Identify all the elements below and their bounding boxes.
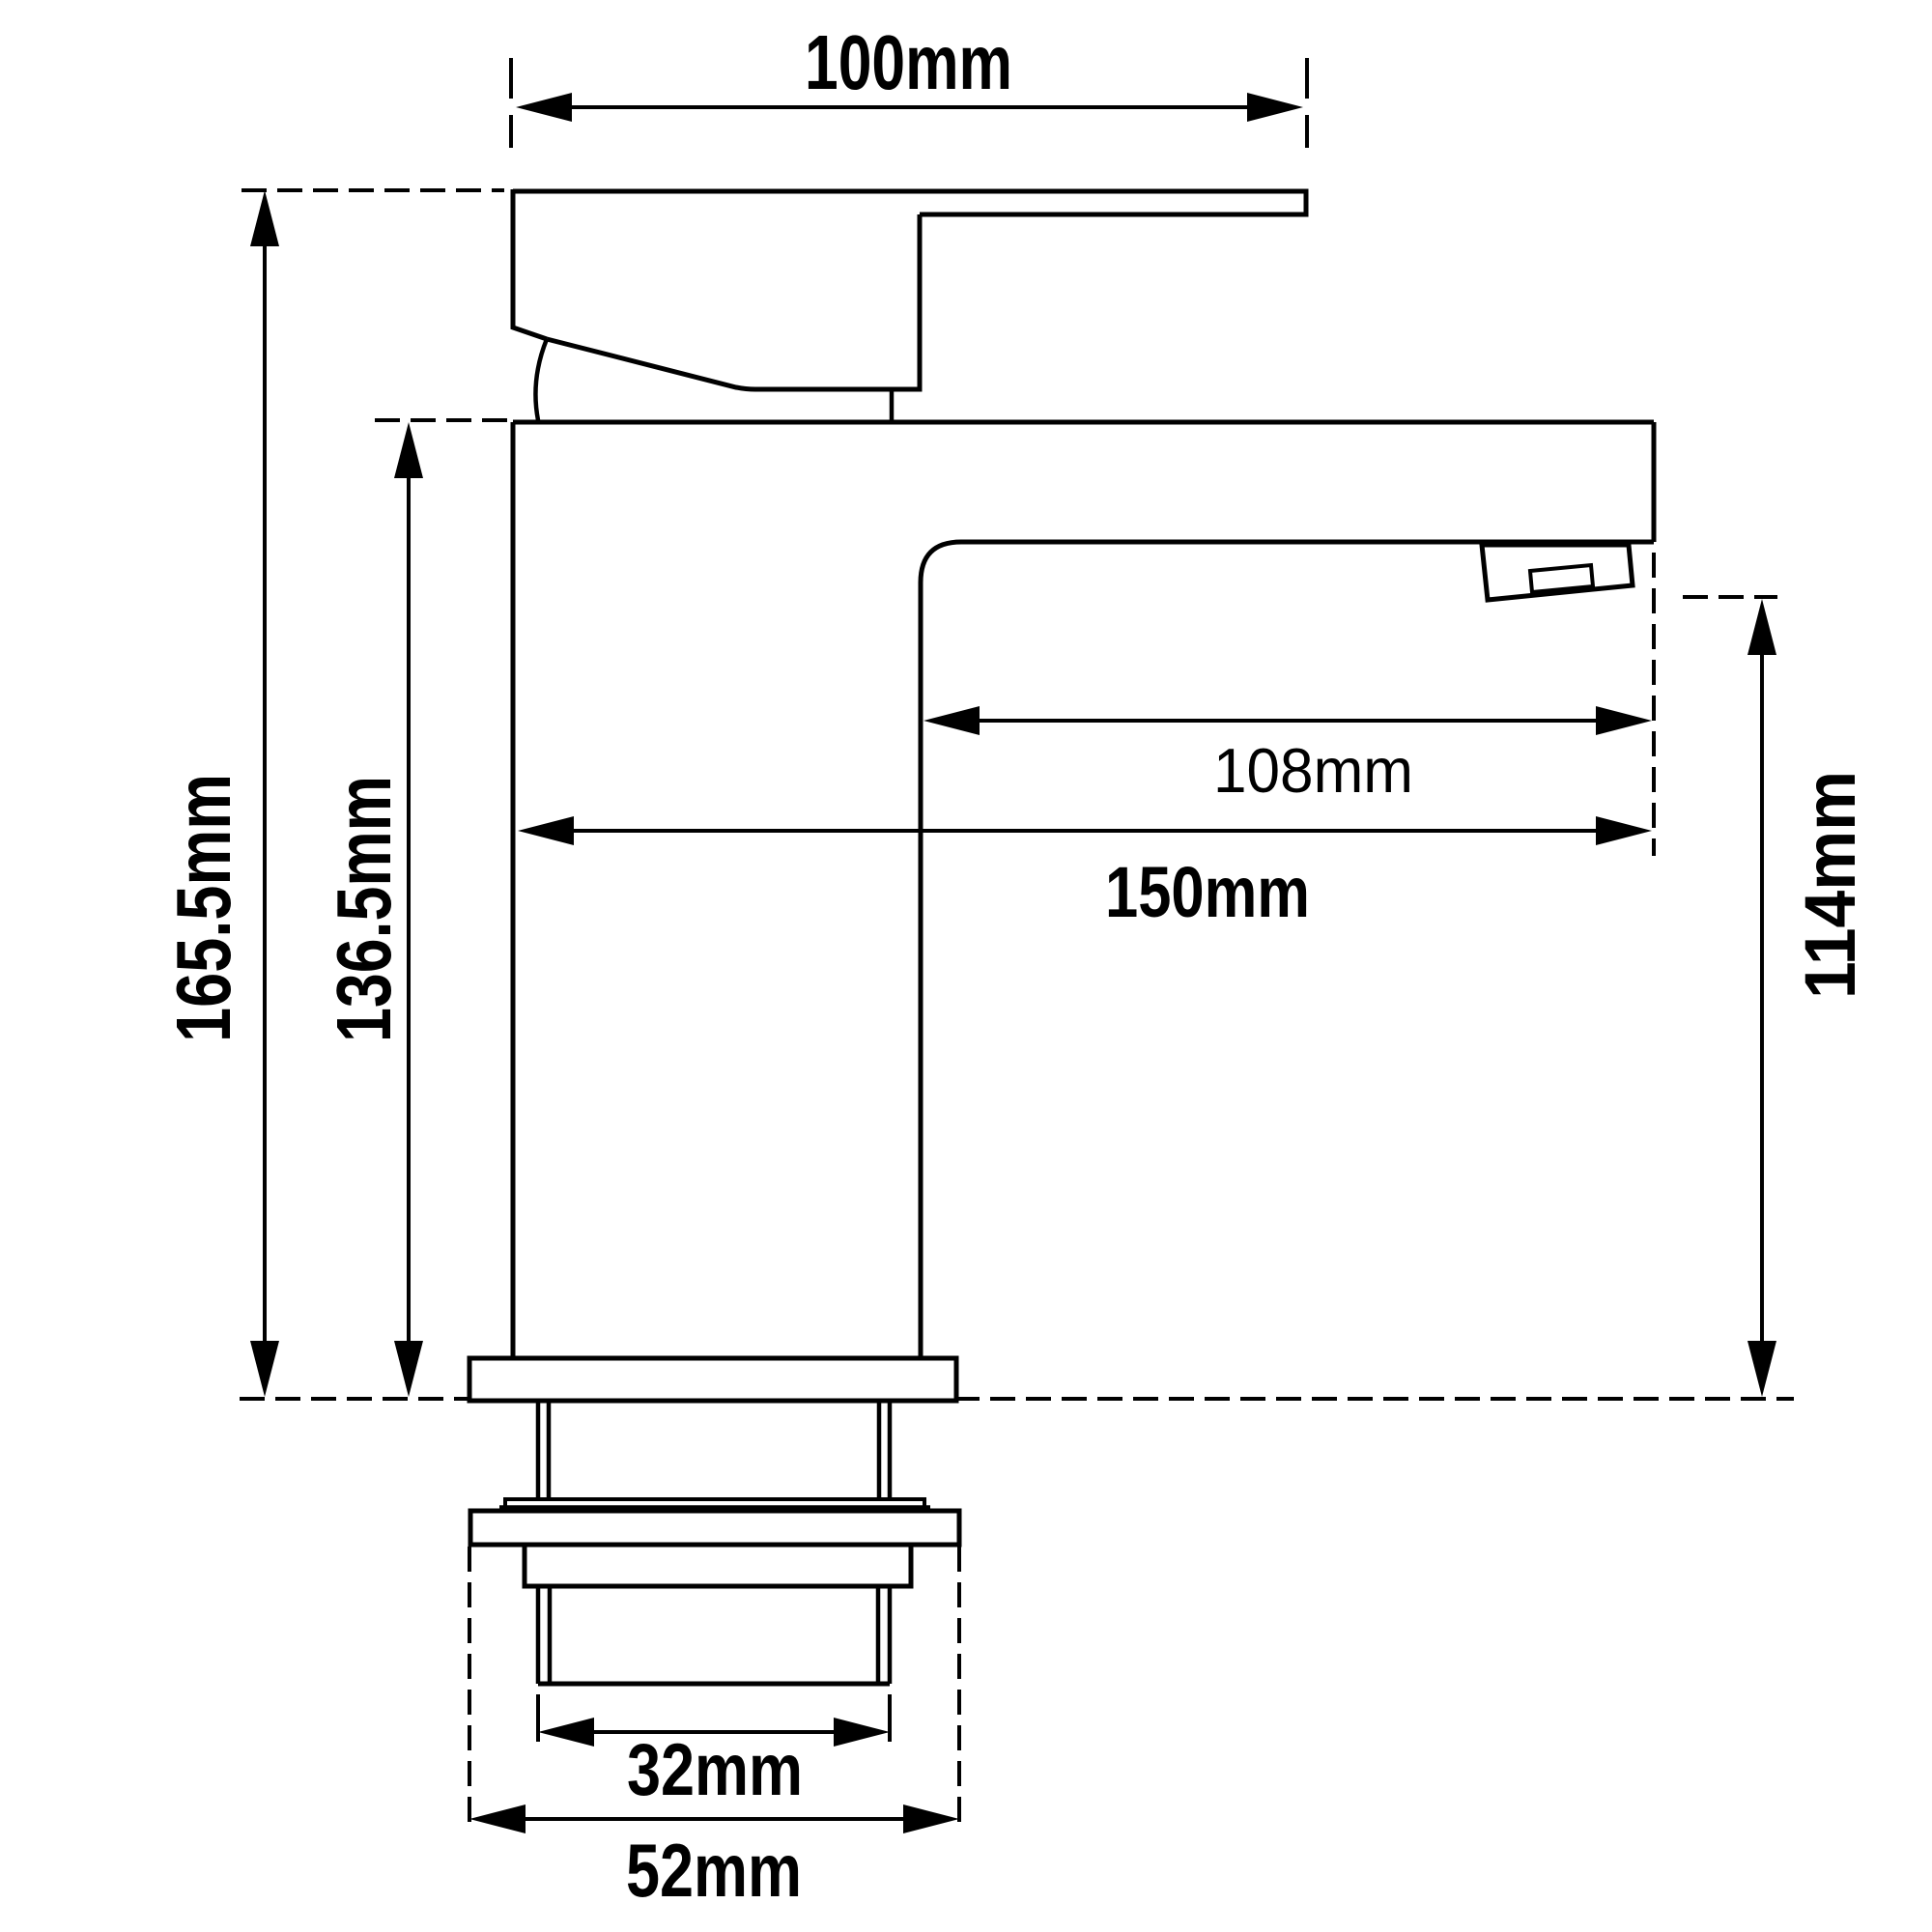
svg-text:100mm: 100mm [805, 19, 1012, 105]
svg-text:165.5mm: 165.5mm [160, 774, 246, 1042]
svg-text:108mm: 108mm [1213, 735, 1413, 806]
svg-text:150mm: 150mm [1105, 852, 1310, 932]
svg-text:136.5mm: 136.5mm [321, 776, 407, 1042]
svg-text:32mm: 32mm [627, 1729, 803, 1811]
svg-text:114mm: 114mm [1790, 771, 1870, 999]
svg-text:52mm: 52mm [626, 1828, 802, 1913]
